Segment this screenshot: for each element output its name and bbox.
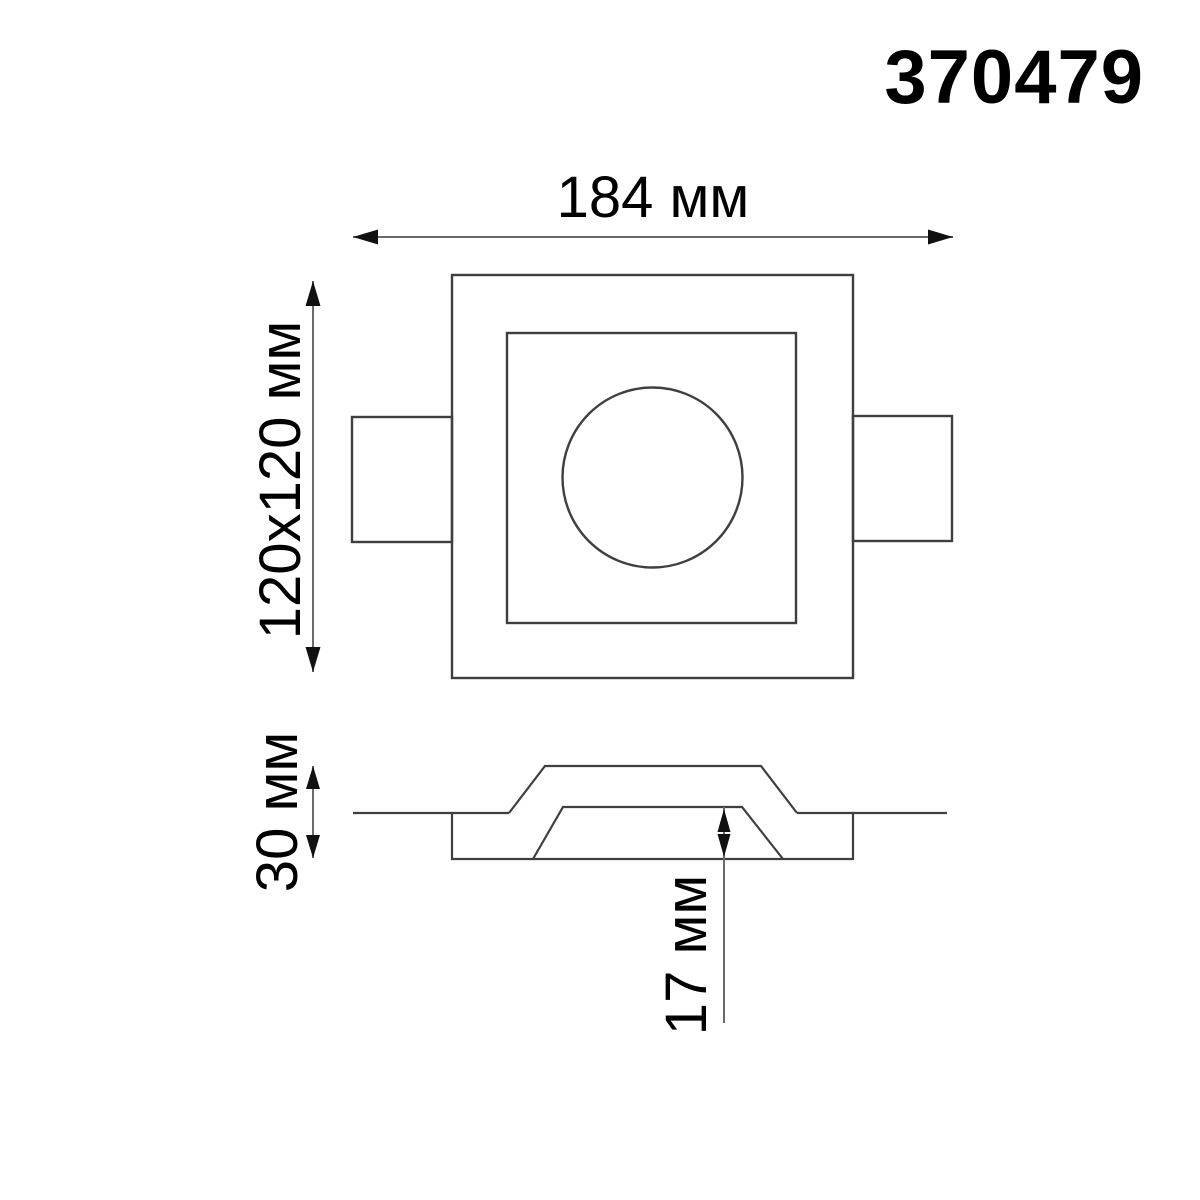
dimension-recess-depth: 17 мм (654, 807, 731, 1035)
section-view (353, 766, 947, 859)
dimension-face-size: 120x120 мм (248, 281, 321, 672)
drawing-canvas: 370479 184 мм 120x120 мм (0, 0, 1200, 1200)
top-view (352, 275, 952, 678)
height-dimension-label: 30 мм (245, 732, 310, 892)
arrowhead-down-icon (306, 647, 321, 672)
arrowhead-left-icon (353, 230, 378, 245)
section-inner-recess (533, 807, 783, 859)
top-view-inner-square (507, 333, 796, 623)
top-view-lamp-hole-circle (563, 388, 743, 568)
top-view-left-tab (352, 417, 452, 542)
arrowhead-right-icon (928, 230, 953, 245)
face-dimension-label: 120x120 мм (248, 321, 313, 639)
dimension-body-height: 30 мм (245, 732, 320, 892)
width-dimension-label: 184 мм (557, 165, 750, 230)
arrowhead-up-icon (306, 281, 321, 306)
top-view-outer-square (452, 275, 853, 678)
dimension-overall-width: 184 мм (353, 165, 953, 245)
arrowhead-up-icon (718, 809, 731, 832)
arrowhead-down-icon (718, 834, 731, 857)
depth-dimension-label: 17 мм (654, 875, 719, 1035)
section-flange-box (452, 813, 853, 859)
technical-drawing: 184 мм 120x120 мм 30 мм (0, 0, 1200, 1200)
top-view-right-tab (853, 416, 952, 541)
